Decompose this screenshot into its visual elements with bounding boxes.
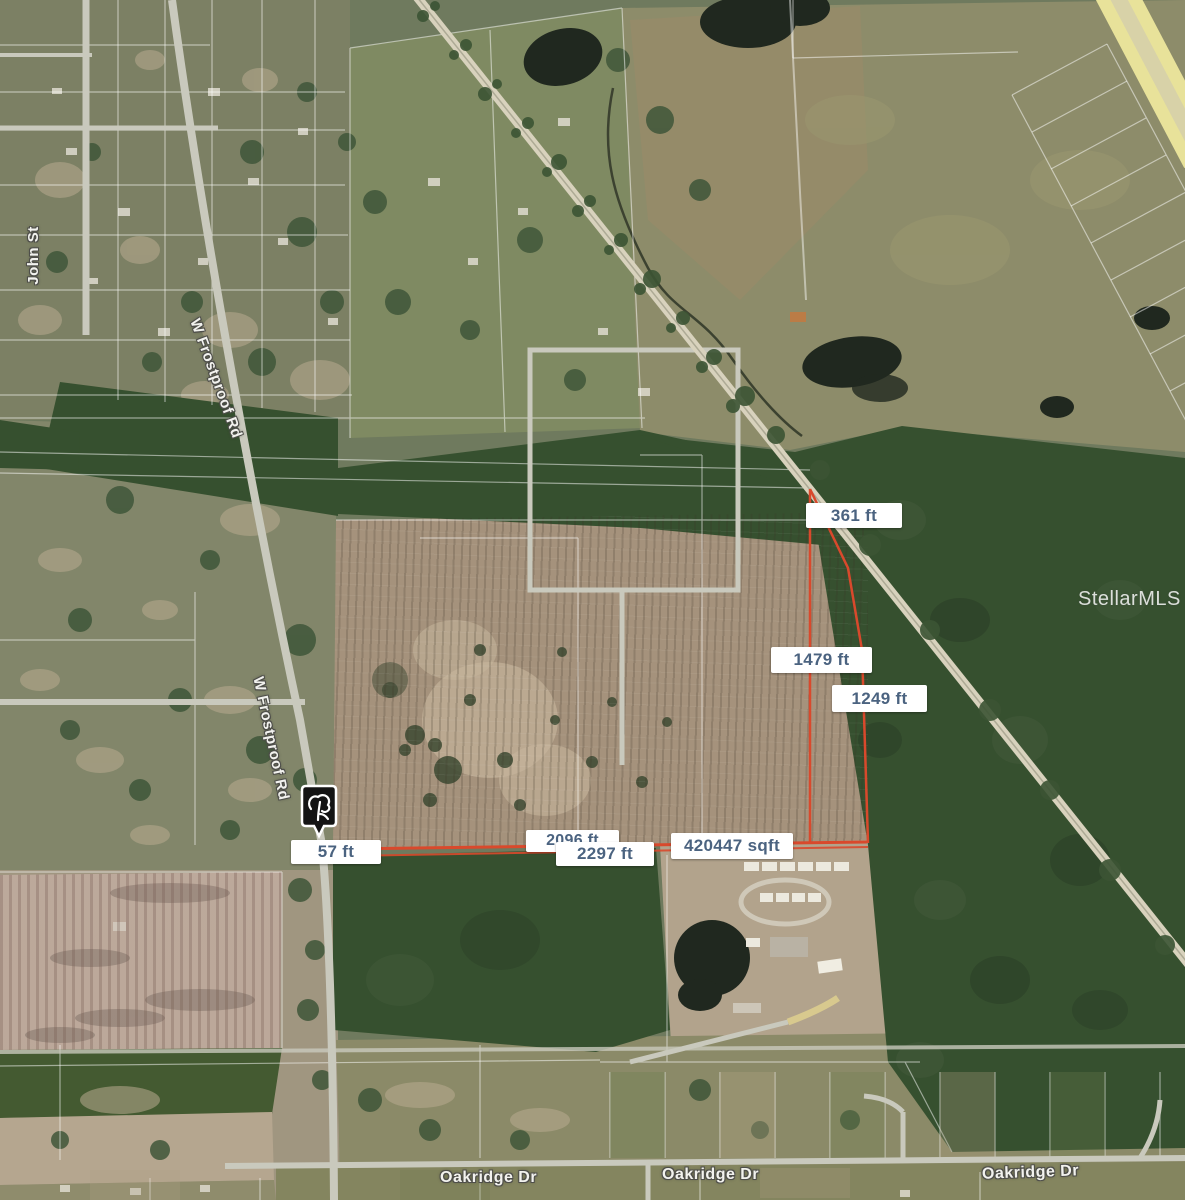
satellite-map: 361 ft 1479 ft 1249 ft 2096 ft 2297 ft 4… bbox=[0, 0, 1185, 1200]
measurement-label-1249: 1249 ft bbox=[832, 685, 927, 712]
measurement-label-2297: 2297 ft bbox=[556, 842, 654, 866]
frostproof-road bbox=[172, 0, 334, 1200]
measurement-label-361: 361 ft bbox=[806, 503, 902, 528]
highway bbox=[1098, 0, 1185, 165]
stellar-mls-watermark: StellarMLS bbox=[1078, 588, 1181, 611]
lot-tints bbox=[90, 1072, 1105, 1200]
map-linework bbox=[0, 0, 1185, 1200]
measurement-label-57: 57 ft bbox=[291, 840, 381, 864]
road-label-oakridge-3: Oakridge Dr bbox=[982, 1162, 1080, 1183]
area-label: 420447 sqft bbox=[671, 833, 793, 859]
cadastral-lines bbox=[0, 0, 1185, 1200]
roads bbox=[0, 0, 1185, 1200]
tree-marker-icon bbox=[292, 784, 346, 842]
measurement-label-1479: 1479 ft bbox=[771, 647, 872, 673]
road-label-oakridge-1: Oakridge Dr bbox=[440, 1169, 537, 1187]
road-label-john-st: John St bbox=[25, 226, 42, 285]
road-label-oakridge-2: Oakridge Dr bbox=[662, 1166, 759, 1184]
